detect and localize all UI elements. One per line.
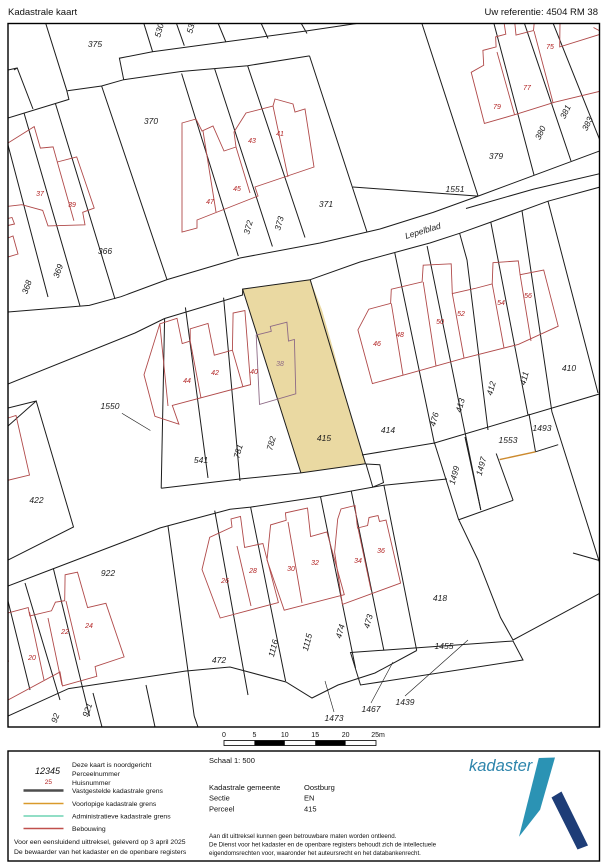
svg-text:1551: 1551 (446, 184, 465, 194)
svg-text:48: 48 (396, 332, 404, 339)
svg-text:77: 77 (523, 85, 532, 92)
svg-text:92: 92 (49, 712, 62, 725)
svg-text:373: 373 (272, 215, 285, 232)
svg-text:370: 370 (144, 116, 158, 126)
svg-text:Perceelnummer: Perceelnummer (72, 771, 121, 778)
svg-text:541: 541 (194, 455, 208, 465)
svg-text:20: 20 (27, 655, 36, 662)
svg-text:371: 371 (319, 199, 333, 209)
svg-text:375: 375 (88, 39, 102, 49)
svg-text:410: 410 (562, 363, 576, 373)
svg-text:Huisnummer: Huisnummer (72, 780, 111, 787)
svg-text:412: 412 (484, 380, 497, 397)
svg-text:37: 37 (36, 191, 45, 198)
svg-text:381: 381 (558, 103, 573, 120)
svg-text:531: 531 (184, 18, 197, 35)
svg-text:47: 47 (206, 199, 215, 206)
svg-text:1116: 1116 (266, 638, 280, 658)
svg-text:40: 40 (250, 369, 258, 376)
svg-text:45: 45 (233, 186, 241, 193)
svg-text:415: 415 (304, 805, 317, 814)
svg-text:1439: 1439 (396, 697, 415, 707)
svg-text:Schaal 1: 500: Schaal 1: 500 (209, 756, 255, 765)
svg-text:39: 39 (68, 202, 76, 209)
svg-text:Uw referentie: 4504 RM 38: Uw referentie: 4504 RM 38 (484, 7, 598, 18)
svg-text:46: 46 (373, 341, 381, 348)
svg-text:Perceel: Perceel (209, 805, 235, 814)
svg-text:368: 368 (20, 278, 34, 295)
svg-text:20: 20 (342, 732, 350, 739)
svg-text:Kadastrale gemeente: Kadastrale gemeente (209, 783, 280, 792)
svg-text:415: 415 (317, 433, 331, 443)
svg-text:Oostburg: Oostburg (304, 783, 335, 792)
svg-text:473: 473 (361, 613, 374, 630)
svg-text:Deze kaart is noordgericht: Deze kaart is noordgericht (72, 762, 151, 769)
svg-text:1115: 1115 (300, 632, 314, 652)
svg-text:1455: 1455 (435, 641, 454, 651)
svg-text:22: 22 (60, 629, 69, 636)
svg-text:12345: 12345 (35, 766, 61, 776)
svg-text:28: 28 (248, 568, 257, 575)
svg-text:418: 418 (433, 593, 447, 603)
svg-text:1473: 1473 (325, 713, 344, 723)
svg-text:1493: 1493 (533, 423, 552, 433)
svg-text:1499: 1499 (447, 465, 462, 486)
svg-text:0: 0 (222, 732, 226, 739)
svg-text:379: 379 (489, 151, 503, 161)
svg-text:25m: 25m (371, 732, 385, 739)
svg-text:369: 369 (51, 262, 65, 279)
svg-text:422: 422 (29, 495, 43, 505)
svg-text:1467: 1467 (362, 704, 381, 714)
svg-text:50: 50 (436, 319, 444, 326)
svg-text:34: 34 (354, 558, 362, 565)
svg-text:Aan dit uittreksel kunnen geen: Aan dit uittreksel kunnen geen betrouwba… (209, 833, 397, 840)
svg-text:Sectie: Sectie (209, 794, 230, 803)
svg-text:921: 921 (80, 701, 94, 718)
svg-text:52: 52 (457, 311, 465, 318)
svg-text:472: 472 (212, 655, 226, 665)
svg-text:De Dienst voor het kadaster en: De Dienst voor het kadaster en de openba… (209, 842, 437, 849)
svg-text:36: 36 (377, 548, 385, 555)
svg-text:1497: 1497 (474, 456, 489, 477)
svg-text:15: 15 (311, 732, 319, 739)
svg-text:Vastgestelde kadastrale grens: Vastgestelde kadastrale grens (72, 788, 164, 795)
svg-text:411: 411 (518, 370, 531, 386)
svg-text:781: 781 (231, 443, 244, 460)
svg-text:Voorlopige kadastrale grens: Voorlopige kadastrale grens (72, 801, 157, 808)
svg-text:24: 24 (84, 623, 93, 630)
svg-text:44: 44 (183, 378, 191, 385)
svg-text:30: 30 (287, 566, 295, 573)
svg-text:372: 372 (241, 219, 254, 236)
svg-text:474: 474 (333, 623, 346, 640)
svg-text:Voor een eensluidend uittrekse: Voor een eensluidend uittreksel, gelever… (14, 839, 186, 846)
svg-text:413: 413 (453, 397, 466, 414)
svg-text:1550: 1550 (101, 401, 120, 411)
svg-text:5: 5 (252, 732, 256, 739)
svg-text:79: 79 (493, 104, 501, 111)
svg-text:Administratieve kadastrale gre: Administratieve kadastrale grens (72, 814, 171, 821)
svg-text:782: 782 (264, 435, 277, 452)
svg-text:De bewaarder van het kadaster: De bewaarder van het kadaster en de open… (14, 849, 187, 856)
svg-text:EN: EN (304, 794, 314, 803)
svg-text:41: 41 (276, 131, 284, 138)
svg-text:Kadastrale kaart: Kadastrale kaart (8, 7, 78, 18)
svg-text:476: 476 (427, 411, 440, 428)
svg-text:Lepelblad: Lepelblad (404, 220, 442, 240)
svg-text:414: 414 (381, 425, 395, 435)
svg-text:922: 922 (101, 568, 115, 578)
svg-text:43: 43 (248, 138, 256, 145)
svg-text:56: 56 (524, 293, 532, 300)
svg-text:42: 42 (211, 370, 219, 377)
svg-text:26: 26 (220, 578, 229, 585)
svg-text:530: 530 (152, 22, 165, 39)
svg-text:54: 54 (497, 300, 505, 307)
svg-text:32: 32 (311, 560, 319, 567)
svg-text:383: 383 (580, 115, 595, 132)
svg-text:10: 10 (281, 732, 289, 739)
svg-text:366: 366 (98, 246, 112, 256)
svg-text:25: 25 (45, 779, 53, 786)
svg-text:eigendomsrechten voor, waarond: eigendomsrechten voor, waaronder het aut… (209, 850, 421, 857)
svg-text:kadaster: kadaster (469, 757, 534, 775)
svg-text:75: 75 (546, 44, 554, 51)
svg-text:380: 380 (533, 124, 548, 141)
svg-text:1553: 1553 (499, 435, 518, 445)
svg-text:Bebouwing: Bebouwing (72, 826, 106, 833)
svg-text:38: 38 (276, 361, 284, 368)
